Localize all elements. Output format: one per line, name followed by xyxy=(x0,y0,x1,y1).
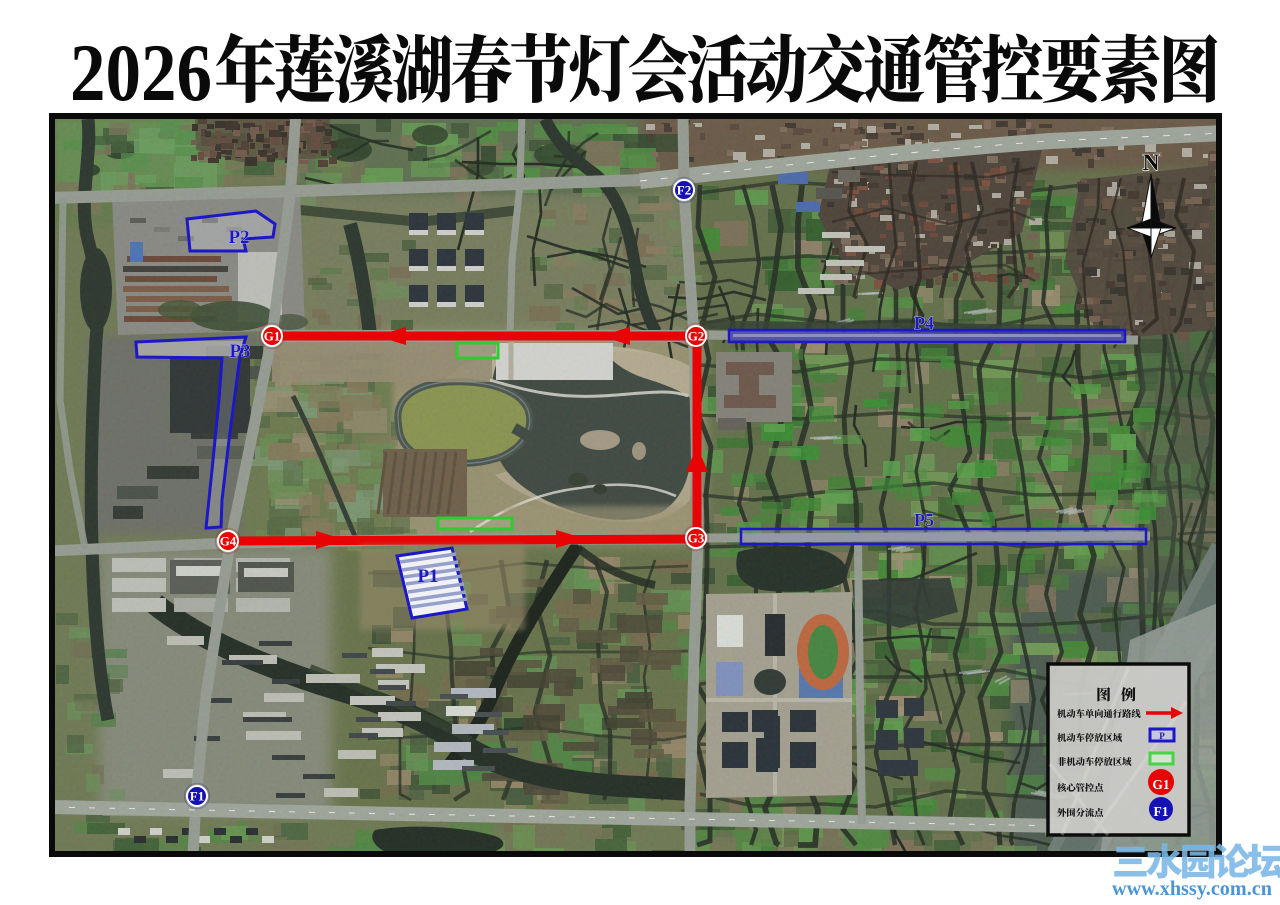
svg-text:P5: P5 xyxy=(914,510,934,530)
svg-text:G1: G1 xyxy=(264,329,281,344)
svg-text:F1: F1 xyxy=(190,789,204,804)
svg-text:F2: F2 xyxy=(677,183,691,198)
svg-text:P: P xyxy=(1159,731,1165,741)
svg-text:2026: 2026 xyxy=(70,27,212,118)
svg-text:P2: P2 xyxy=(228,227,249,248)
svg-text:G1: G1 xyxy=(1152,777,1170,792)
svg-text:F1: F1 xyxy=(1154,804,1169,819)
svg-text:G2: G2 xyxy=(688,329,705,344)
svg-text:P4: P4 xyxy=(914,313,934,333)
svg-text:www.xhssy.com.cn: www.xhssy.com.cn xyxy=(1112,876,1272,900)
svg-text:P1: P1 xyxy=(417,566,438,587)
svg-text:G3: G3 xyxy=(688,531,705,546)
svg-text:P3: P3 xyxy=(229,341,250,362)
svg-text:G4: G4 xyxy=(220,534,237,549)
svg-text:N: N xyxy=(1143,150,1160,175)
